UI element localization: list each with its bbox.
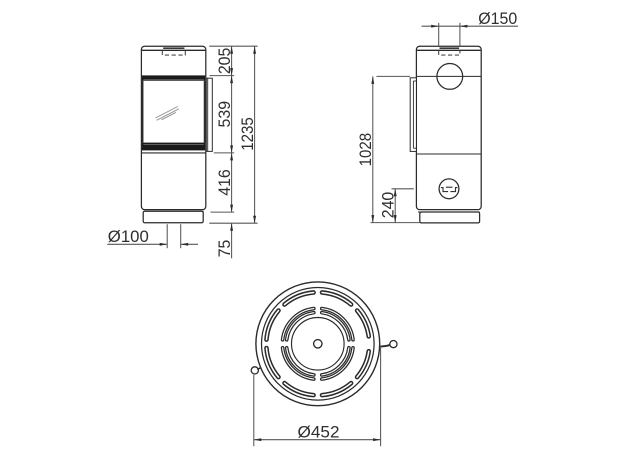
svg-text:Ø452: Ø452: [298, 424, 340, 442]
svg-text:75: 75: [216, 240, 234, 258]
svg-text:Ø150: Ø150: [478, 10, 517, 28]
svg-text:1235: 1235: [239, 117, 257, 151]
svg-text:1028: 1028: [357, 133, 375, 167]
svg-text:205: 205: [216, 48, 234, 75]
svg-text:240: 240: [380, 192, 398, 219]
svg-text:416: 416: [216, 169, 234, 196]
svg-text:Ø100: Ø100: [108, 228, 149, 246]
svg-text:539: 539: [216, 101, 234, 128]
